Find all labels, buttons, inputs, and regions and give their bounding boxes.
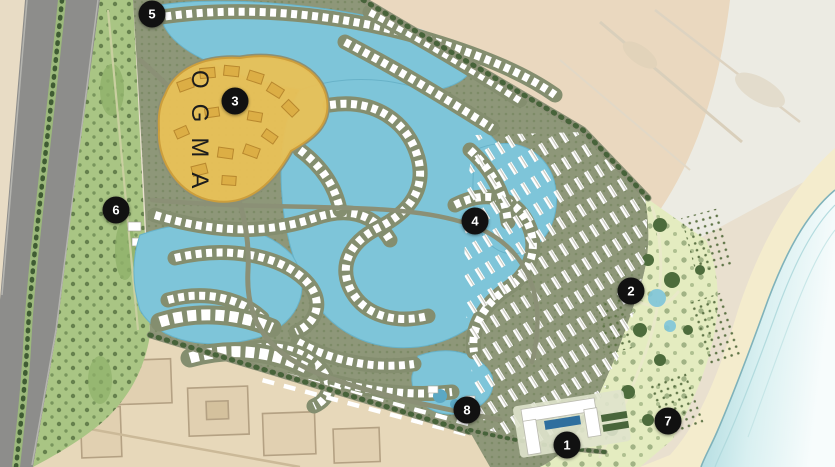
map-marker-7[interactable]: 7: [655, 408, 682, 435]
map-marker-8[interactable]: 8: [454, 397, 481, 424]
map-marker-2[interactable]: 2: [618, 278, 645, 305]
masterplan-map: [0, 0, 835, 467]
map-marker-3[interactable]: 3: [222, 88, 249, 115]
masterplan-canvas: OGMA 12345678: [0, 0, 835, 467]
map-marker-4[interactable]: 4: [462, 208, 489, 235]
map-marker-6[interactable]: 6: [103, 197, 130, 224]
map-marker-5[interactable]: 5: [139, 1, 166, 28]
map-marker-1[interactable]: 1: [554, 432, 581, 459]
